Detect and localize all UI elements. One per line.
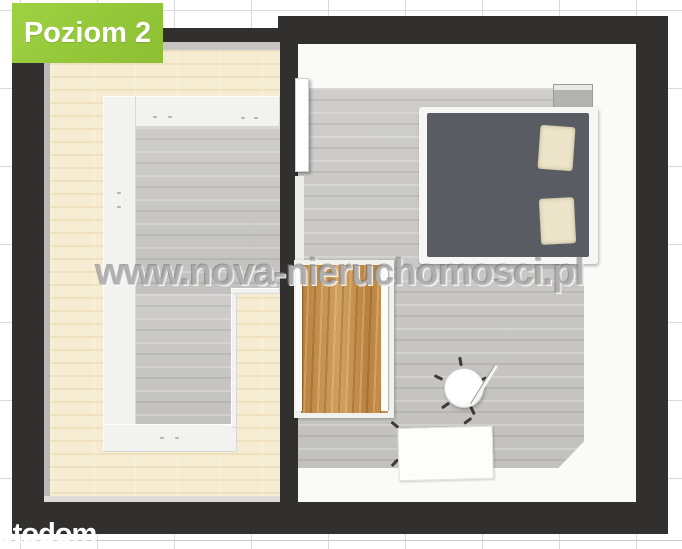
floorplan-canvas: Poziom 2 www.nova-nieruchomosci.pl otodo… bbox=[0, 0, 682, 549]
railing-screw bbox=[117, 206, 121, 208]
railing-screw bbox=[254, 117, 258, 119]
level-badge: Poziom 2 bbox=[12, 3, 163, 63]
desk-leg bbox=[463, 417, 472, 425]
wall-bottom bbox=[12, 502, 668, 534]
bed bbox=[419, 107, 598, 264]
bed-pillow bbox=[539, 197, 576, 245]
chair-leg bbox=[441, 402, 450, 410]
desk bbox=[387, 414, 501, 485]
scale-ruler-line bbox=[0, 540, 682, 541]
chair-leg bbox=[434, 374, 443, 381]
railing-screw bbox=[175, 437, 179, 439]
chair-leg bbox=[458, 357, 463, 366]
left-room-baseboard-bottom bbox=[44, 496, 280, 502]
door-frame-strip bbox=[295, 176, 304, 262]
railing-screw bbox=[117, 192, 121, 194]
door-leaf bbox=[295, 78, 309, 172]
chair-seat bbox=[444, 368, 484, 408]
desk-top bbox=[397, 426, 493, 481]
bed-pillow bbox=[538, 125, 576, 171]
railing-screw bbox=[241, 117, 245, 119]
railing-bottom bbox=[103, 424, 237, 452]
wall-top-right-section bbox=[278, 16, 668, 44]
stair-void-lower bbox=[136, 294, 231, 424]
level-badge-label: Poziom 2 bbox=[24, 17, 151, 50]
railing-screw bbox=[168, 116, 172, 118]
otodom-logo: otodom bbox=[0, 518, 96, 549]
railing-screw bbox=[153, 116, 157, 118]
railing-screw bbox=[160, 437, 164, 439]
railing-inner-vertical bbox=[231, 288, 237, 428]
watermark-text: www.nova-nieruchomosci.pl bbox=[30, 252, 650, 295]
